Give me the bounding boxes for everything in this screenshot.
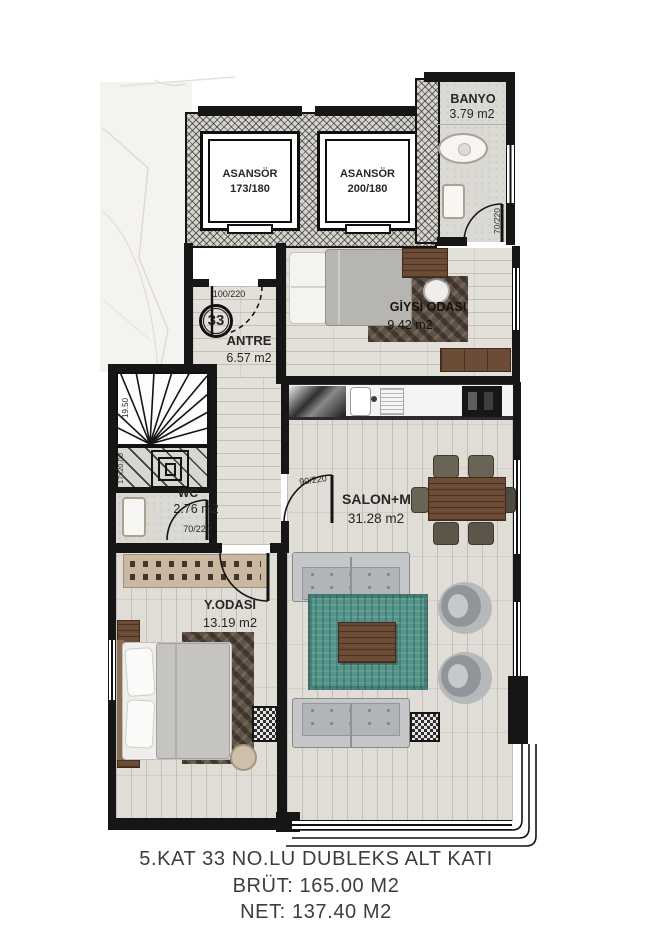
elevator-cab <box>325 139 410 223</box>
kitchen-sink <box>350 387 371 416</box>
wall-segment <box>508 676 528 744</box>
elevator-cab <box>208 139 292 223</box>
stair-label: 19.50 <box>121 386 130 430</box>
armchair-cushion <box>448 664 468 688</box>
coffee-table <box>338 622 396 663</box>
wall-segment <box>108 700 116 824</box>
elevator-door <box>227 224 273 234</box>
wall-segment <box>209 364 217 548</box>
wall-segment <box>277 553 287 823</box>
bed-pillow <box>124 647 155 697</box>
wardrobe <box>123 554 268 588</box>
window <box>108 640 116 702</box>
wall-segment <box>198 106 302 116</box>
bed-pillows <box>289 252 327 324</box>
wall-segment <box>506 203 515 245</box>
desk <box>402 248 448 278</box>
room-label: Y.ODASI <box>188 598 272 613</box>
window <box>292 820 512 830</box>
wardrobe-knobs <box>130 574 261 580</box>
stair-label: 17x20.00 <box>116 448 125 490</box>
faucet <box>371 396 377 402</box>
dining-chair <box>468 455 494 478</box>
room-size: 200/180 <box>320 183 415 195</box>
cooktop-burner <box>468 392 477 410</box>
room-area: 3.79 m2 <box>436 107 508 121</box>
cooktop <box>462 386 502 417</box>
room-size: 173/180 <box>203 183 297 195</box>
site-sketch-area <box>100 82 192 372</box>
wall-segment <box>512 246 520 270</box>
sofa <box>292 698 410 748</box>
room-label: GİYSİ ODASI <box>372 300 484 314</box>
wall-segment <box>184 243 193 381</box>
bed-fold-line <box>338 250 340 324</box>
dimension-line <box>438 124 506 125</box>
sofa-divider <box>350 703 352 747</box>
bed-blanket <box>156 643 230 759</box>
elevator-door <box>345 224 391 234</box>
bathtub-drain <box>458 143 471 156</box>
armchair <box>438 582 492 634</box>
room-label: ANTRE <box>214 334 284 349</box>
room-area: 9.42 m2 <box>374 318 446 332</box>
caption-line-2: BRÜT: 165.00 M2 <box>0 873 646 899</box>
wall-segment <box>512 330 520 382</box>
pouf <box>230 744 257 771</box>
dresser <box>440 348 511 372</box>
caption-line-1: 5.KAT 33 NO.LU DUBLEKS ALT KATI <box>0 846 646 872</box>
elevator-shaft-left: ASANSÖR 173/180 <box>200 131 300 231</box>
window <box>513 602 521 678</box>
caption-line-3: NET: 137.40 M2 <box>0 899 646 925</box>
window <box>506 145 515 205</box>
room-area: 6.57 m2 <box>210 351 288 365</box>
armchair-cushion <box>448 594 468 618</box>
corridor-floor <box>216 378 281 545</box>
wall-segment <box>276 376 520 384</box>
wall-segment <box>315 106 420 116</box>
plan-caption: 5.KAT 33 NO.LU DUBLEKS ALT KATI BRÜT: 16… <box>0 846 660 930</box>
dining-chair <box>411 487 429 513</box>
room-label: WC <box>168 487 208 500</box>
wall-segment <box>108 818 298 830</box>
column-hatch <box>252 706 278 742</box>
stair-lower <box>116 446 209 491</box>
wall-segment <box>424 72 514 82</box>
sink-drainer <box>380 388 404 415</box>
wall-segment <box>437 237 467 246</box>
cooktop-burner <box>484 392 493 410</box>
wall-segment <box>108 368 116 642</box>
wall-segment <box>513 554 521 604</box>
door-size-label: 70/220 <box>174 524 220 534</box>
dining-chair <box>433 455 459 478</box>
room-area: 13.19 m2 <box>184 616 276 631</box>
column-hatch <box>410 712 440 742</box>
door-size-label: 70/220 <box>492 200 502 242</box>
washbasin <box>442 184 465 219</box>
wall-segment <box>513 382 521 462</box>
wardrobe-knobs <box>130 561 261 567</box>
bed-pillow-line <box>291 286 325 288</box>
room-label: ASANSÖR <box>320 168 415 180</box>
floor-plan: ASANSÖR 173/180 ASANSÖR 200/180 BANYO 3.… <box>0 0 660 933</box>
room-label: BANYO <box>440 92 506 106</box>
room-area: 31.28 m2 <box>328 511 424 526</box>
shaft-wall-hatch <box>415 78 440 244</box>
unit-number: 33 <box>202 313 230 330</box>
wall-segment <box>281 384 289 474</box>
window <box>512 268 520 332</box>
room-area: 2.76 m2 <box>156 502 236 516</box>
armchair <box>438 652 492 704</box>
wall-segment <box>270 543 287 553</box>
wall-segment <box>258 279 278 287</box>
bed-pillow <box>125 699 155 748</box>
fridge <box>289 386 346 417</box>
dining-chair <box>468 522 494 545</box>
room-label: ASANSÖR <box>203 168 297 180</box>
dining-chair <box>433 522 459 545</box>
dining-table <box>428 477 506 521</box>
wall-segment <box>108 364 215 372</box>
wc-washbasin <box>122 497 146 537</box>
wall-segment <box>108 543 222 553</box>
elevator-shaft-right: ASANSÖR 200/180 <box>317 131 418 231</box>
door-size-label: 100/220 <box>204 289 254 299</box>
wall-segment <box>193 279 209 287</box>
